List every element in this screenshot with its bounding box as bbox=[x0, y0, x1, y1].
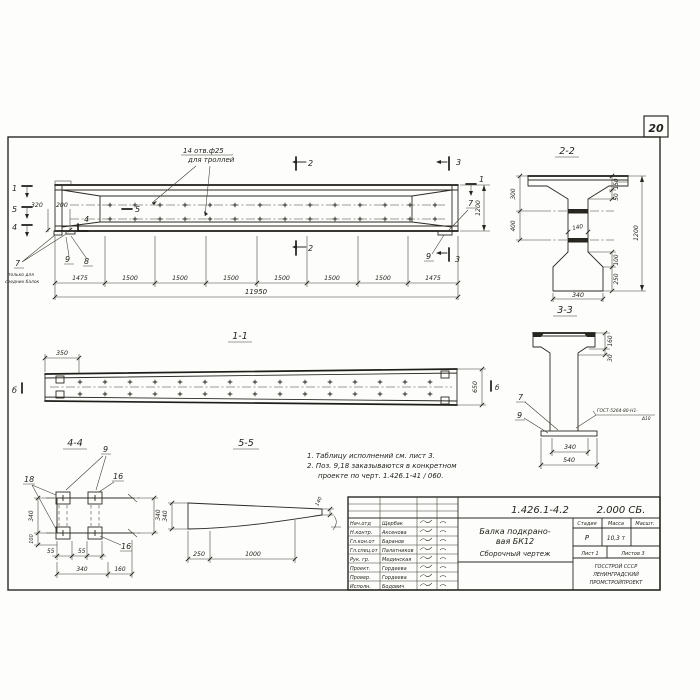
marker-5-label: 5 bbox=[12, 205, 17, 214]
marker-5-inner: 5 bbox=[135, 205, 140, 214]
staff-rows: Нач.отд Щербак Н.контр. Аксенова Гл.кон.… bbox=[350, 520, 446, 590]
stamp-mark bbox=[331, 516, 341, 530]
notes: 1. Таблицу исполнений см. лист 3. 2. Поз… bbox=[307, 452, 457, 480]
staff-role: Нач.отд bbox=[350, 521, 371, 527]
dim-650: 650 bbox=[472, 381, 479, 393]
staff-name: Гордеева bbox=[382, 575, 407, 581]
marker-4-label: 4 bbox=[12, 223, 17, 232]
chain-dim: 1500 bbox=[122, 275, 138, 282]
dim-100-left: 100 bbox=[29, 534, 35, 544]
dim-340-bottom: 340 bbox=[572, 292, 584, 299]
drawing-canvas: 20 14 отв.ф25 для троллей 1 5 4 bbox=[0, 0, 700, 700]
chain-dim: 1500 bbox=[274, 275, 290, 282]
pos-9-label: 9 bbox=[65, 255, 70, 264]
dim-100: 100 bbox=[614, 254, 620, 265]
org-line1: ГОССТРОЙ СССР bbox=[595, 563, 638, 570]
dim-340-sec55: 340 bbox=[163, 510, 169, 521]
dim-1200-section: 1200 bbox=[633, 225, 640, 241]
dim-350: 350 bbox=[56, 350, 68, 357]
org-line3: ПРОМСТРОЙПРОЕКТ bbox=[590, 579, 644, 586]
section-markers-inner: 5 4 bbox=[78, 205, 140, 231]
drawing-title-line3: Сборочный чертеж bbox=[480, 550, 551, 558]
dim-200: 200 bbox=[56, 202, 68, 209]
dim-140-sec55: 140 bbox=[314, 496, 323, 507]
chain-dim: 1500 bbox=[324, 275, 340, 282]
pos-7-note-line2: средних балок bbox=[5, 279, 40, 285]
staff-name: Аксенова bbox=[381, 530, 407, 536]
pos-7-note-line1: только для bbox=[8, 273, 34, 278]
dim-540-sec33: 540 bbox=[563, 457, 575, 464]
marker-3-top: 3 bbox=[456, 158, 461, 167]
dim-55a: 55 bbox=[47, 549, 55, 555]
section-markers-right: 2 2 3 3 1 bbox=[292, 157, 484, 264]
bolt-group bbox=[46, 492, 142, 539]
staff-name: Щербак bbox=[382, 521, 403, 527]
section-5-5-title: 5-5 bbox=[238, 438, 254, 449]
marker-2-top: 2 bbox=[308, 159, 313, 168]
sheet-label: Лист 1 bbox=[580, 551, 598, 557]
dim-50: 50 bbox=[614, 193, 620, 201]
pos-7-label: 7 bbox=[15, 259, 21, 268]
marker-4-inner: 4 bbox=[84, 215, 89, 224]
marker-1-label: 1 bbox=[12, 184, 17, 193]
section-4-4: 4-4 9 18 16 16 340 100 340 bbox=[23, 438, 162, 578]
org-line2: ЛЕНИНГРАДСКИЙ bbox=[592, 571, 639, 578]
dim-320: 320 bbox=[31, 202, 43, 209]
drawing-sheet: 20 14 отв.ф25 для троллей 1 5 4 bbox=[0, 0, 700, 700]
drawing-title-line1: Балка подкрано- bbox=[479, 527, 550, 536]
note-line2: 2. Поз. 9,18 заказываются в конкретном bbox=[307, 462, 457, 470]
section-3-3: 3-3 160 30 ГОСТ-5264-80-Н1- Δ10 7 9 340 … bbox=[515, 305, 655, 469]
dim-55b: 55 bbox=[78, 549, 86, 555]
sheets-label: Листов 3 bbox=[620, 551, 644, 557]
dim-340-bottom44: 340 bbox=[76, 567, 87, 573]
staff-name: Бодович bbox=[382, 584, 404, 590]
dim-1000: 1000 bbox=[245, 551, 261, 558]
main-elevation-view: 14 отв.ф25 для троллей 1 5 4 5 4 320 200 bbox=[5, 147, 490, 300]
note-line3: проекте по черт. 1.426.1-41 / 060. bbox=[318, 472, 444, 480]
doc-code: 2.000 СБ. bbox=[597, 505, 646, 516]
dim-160: 160 bbox=[608, 335, 614, 346]
dim-340-right: 340 bbox=[156, 509, 162, 520]
dim-250: 250 bbox=[614, 273, 620, 284]
doc-number: 1.426.1-4.2 bbox=[511, 505, 569, 516]
staff-role: Провер. bbox=[350, 575, 371, 581]
staff-role: Рук. гр. bbox=[350, 557, 370, 563]
pos-16-top-label: 16 bbox=[113, 472, 123, 481]
section-4-4-title: 4-4 bbox=[67, 438, 83, 449]
pos-9-right: 9 bbox=[426, 252, 431, 261]
staff-role: Гл.кон.от bbox=[350, 539, 376, 545]
marker-3-bottom: 3 bbox=[455, 255, 460, 264]
dim-total-11950: 11950 bbox=[245, 288, 268, 296]
chain-dim: 1475 bbox=[425, 275, 441, 282]
holes-callout-line1: 14 отв.ф25 bbox=[183, 147, 224, 155]
weld-note-line2: Δ10 bbox=[641, 416, 651, 422]
pos-7-sec33: 7 bbox=[518, 393, 524, 402]
dim-30: 30 bbox=[608, 354, 614, 362]
dim-250: 250 bbox=[193, 551, 205, 558]
section-2-2: 2-2 300 400 150 50 100 250 1200 140 340 bbox=[511, 146, 646, 302]
staff-role: Исполн. bbox=[350, 584, 371, 590]
section-markers-left: 1 5 4 bbox=[12, 184, 32, 237]
chain-dim: 1500 bbox=[375, 275, 391, 282]
section-3-3-title: 3-3 bbox=[557, 305, 573, 316]
stage-value: Р bbox=[585, 534, 590, 542]
marker-b-right: б bbox=[495, 384, 500, 392]
mass-value: 10,3 т bbox=[607, 536, 626, 542]
pos-18-label: 18 bbox=[24, 475, 34, 484]
chain-dim: 1475 bbox=[72, 275, 88, 282]
sheet-number: 20 bbox=[648, 122, 664, 135]
chain-dim: 1500 bbox=[223, 275, 239, 282]
dim-140-web: 140 bbox=[572, 224, 584, 232]
staff-role: Проект. bbox=[350, 566, 371, 572]
pos-9-sec33: 9 bbox=[517, 411, 522, 420]
view-1-1-title: 1-1 bbox=[232, 331, 248, 342]
staff-name: Палатников bbox=[382, 548, 414, 554]
drawing-title-line2: вая БК12 bbox=[496, 537, 534, 546]
marker-1-right: 1 bbox=[479, 175, 484, 184]
note-line1: 1. Таблицу исполнений см. лист 3. bbox=[307, 452, 435, 460]
dim-300: 300 bbox=[511, 188, 517, 199]
sheet-frame: 20 bbox=[8, 116, 668, 590]
holes-callout-line2: для троллей bbox=[187, 156, 235, 164]
staff-name: Баранов bbox=[382, 539, 404, 545]
scale-header: Масшт. bbox=[635, 521, 654, 527]
pos-9-sec44: 9 bbox=[103, 445, 108, 454]
pos-7-right: 7 bbox=[468, 199, 474, 208]
dim-1200-main: 1200 bbox=[475, 200, 482, 216]
dim-160-bottom44: 160 bbox=[114, 567, 125, 573]
mass-header: Масса bbox=[608, 521, 624, 527]
view-1-1: 1-1 350 650 б б bbox=[12, 331, 500, 407]
chain-dim: 1500 bbox=[172, 275, 188, 282]
dim-340-left: 340 bbox=[29, 510, 35, 521]
title-block: 1.426.1-4.2 2.000 СБ. Балка подкрано- ва… bbox=[331, 497, 660, 590]
staff-role: Гл.спец.от bbox=[350, 548, 379, 554]
dim-340-sec33: 340 bbox=[564, 444, 576, 451]
staff-role: Н.контр. bbox=[350, 530, 372, 536]
section-2-2-title: 2-2 bbox=[559, 146, 575, 157]
signature-marks bbox=[420, 520, 446, 586]
marker-b-left: б bbox=[12, 386, 17, 395]
holes-callout: 14 отв.ф25 для троллей bbox=[152, 147, 235, 216]
stage-header: Стадия bbox=[577, 521, 596, 527]
marker-2-bottom: 2 bbox=[308, 244, 313, 253]
dim-400: 400 bbox=[511, 220, 517, 231]
weld-note-line1: ГОСТ-5264-80-Н1- bbox=[597, 408, 638, 414]
dimension-chain: 1475 1500 1500 1500 1500 1500 1500 1475 … bbox=[53, 236, 460, 300]
staff-name: Мединская bbox=[382, 557, 411, 563]
staff-name: Гордеева bbox=[382, 566, 407, 572]
dim-150: 150 bbox=[614, 178, 620, 189]
pos-16-bottom-label: 16 bbox=[121, 542, 131, 551]
